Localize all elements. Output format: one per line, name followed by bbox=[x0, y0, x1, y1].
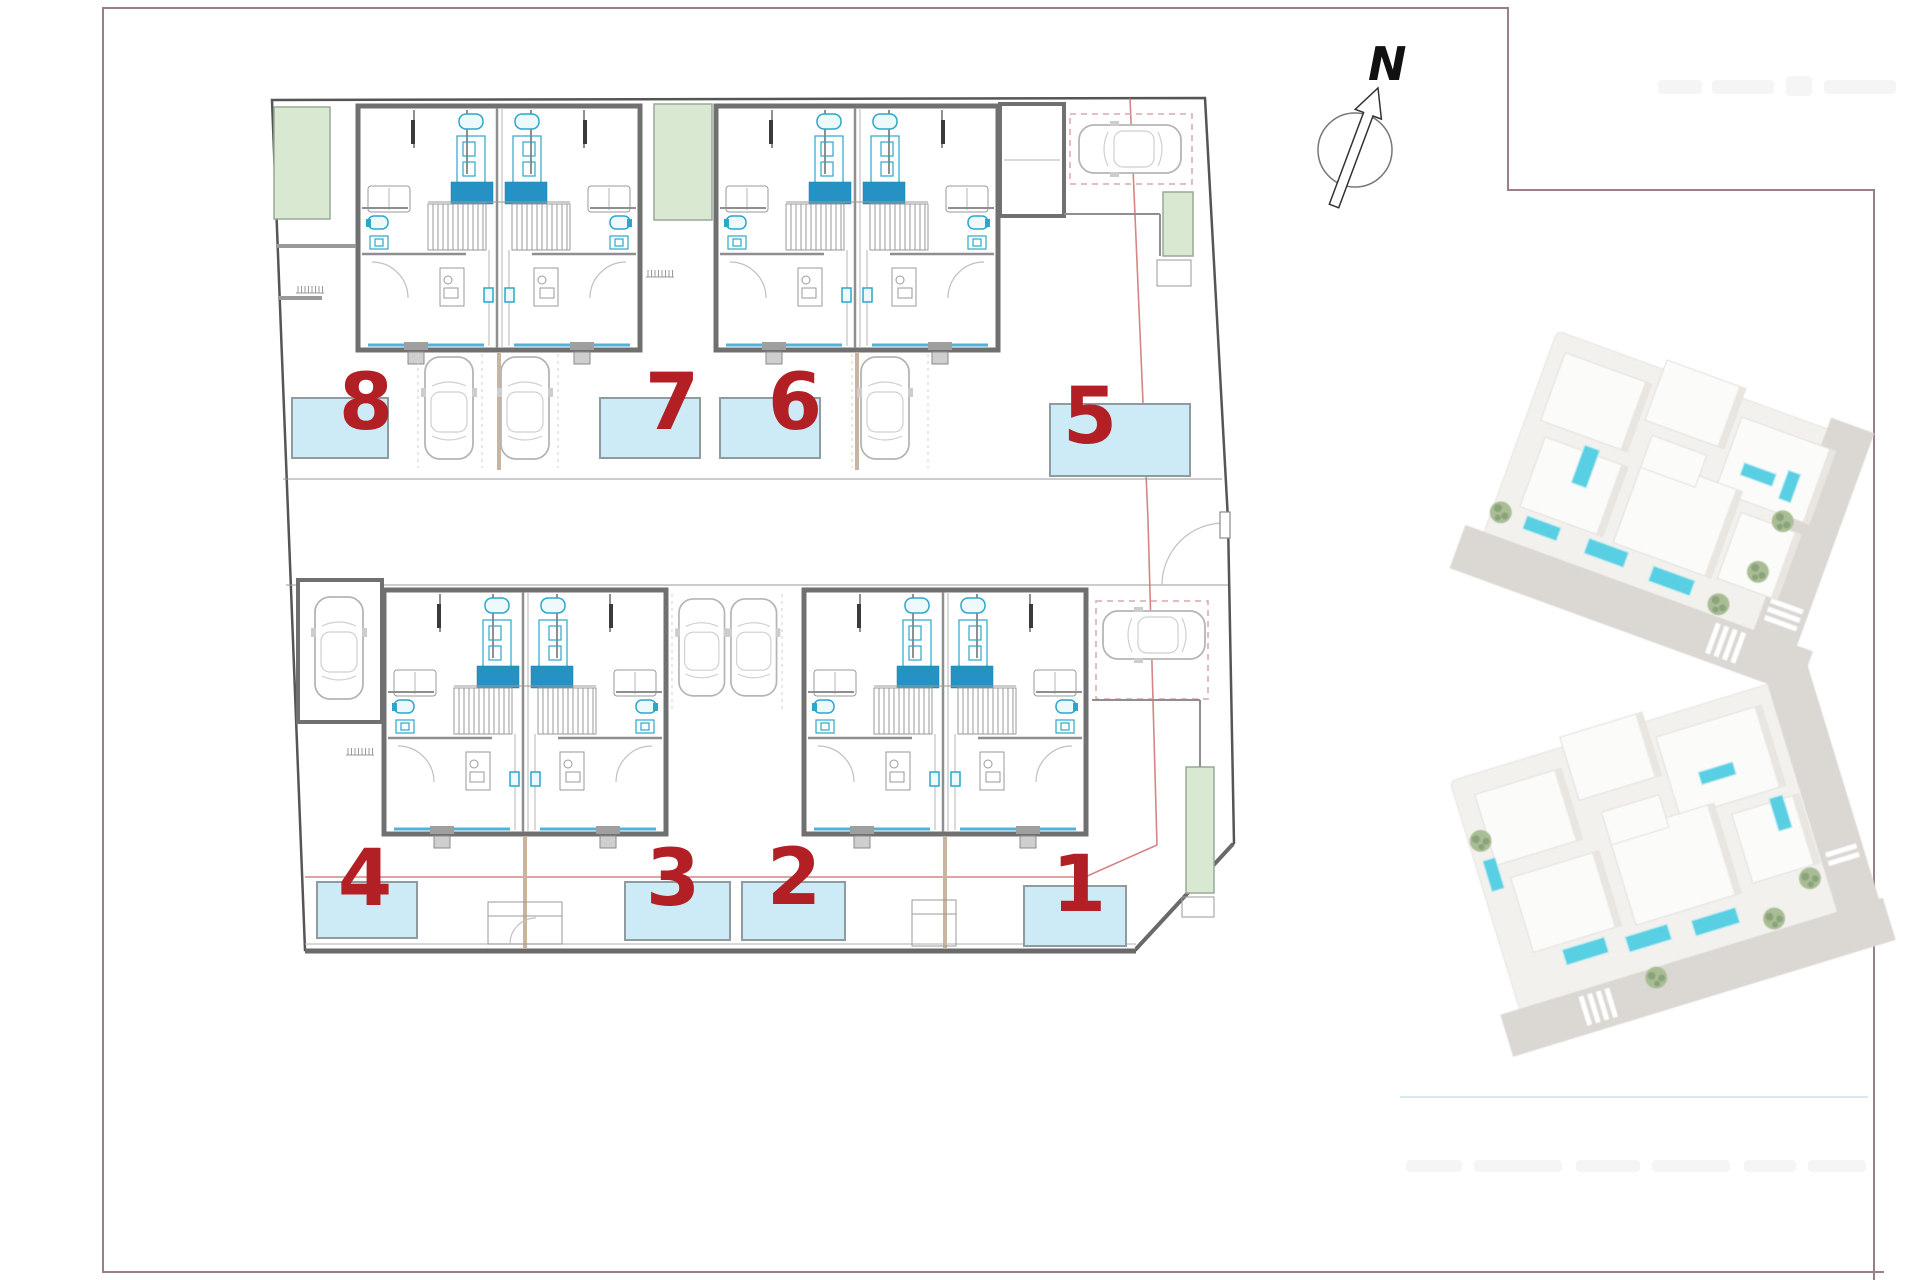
villa-number-3: 3 bbox=[646, 834, 700, 924]
car-icon bbox=[1103, 607, 1205, 663]
car-icon bbox=[421, 357, 477, 459]
building-duplex-4-3 bbox=[384, 590, 666, 848]
north-label: N bbox=[1368, 37, 1407, 91]
car-icon bbox=[1079, 121, 1181, 177]
villa-number-1: 1 bbox=[1052, 840, 1106, 930]
gate-post bbox=[1220, 512, 1230, 538]
car-icon bbox=[311, 597, 367, 699]
car-icon bbox=[727, 599, 780, 696]
car-icon bbox=[675, 599, 728, 696]
villa-number-8: 8 bbox=[339, 358, 393, 448]
green-patch-1 bbox=[274, 107, 330, 219]
car-icon bbox=[857, 357, 913, 459]
villa-number-6: 6 bbox=[768, 358, 822, 448]
green-patch-4 bbox=[1186, 767, 1214, 893]
green-patch-2 bbox=[654, 104, 712, 220]
watermark-top bbox=[1658, 76, 1896, 96]
watermark-bottom bbox=[1406, 1160, 1866, 1172]
building-duplex-8-7 bbox=[358, 106, 640, 364]
building-duplex-2-1 bbox=[804, 590, 1086, 848]
site-plan-page: 8 7 6 5 4 3 2 1 N bbox=[0, 0, 1920, 1280]
site-plan-drawing: 8 7 6 5 4 3 2 1 N bbox=[0, 0, 1920, 1280]
north-compass: N bbox=[1318, 37, 1407, 208]
villa-number-5: 5 bbox=[1063, 372, 1117, 462]
villa-number-2: 2 bbox=[767, 833, 821, 923]
green-patch-3 bbox=[1163, 192, 1193, 256]
villa-number-7: 7 bbox=[645, 358, 699, 448]
aerial-render-bottom bbox=[1428, 661, 1896, 1057]
villa-number-4: 4 bbox=[338, 834, 392, 924]
north-arrow-icon bbox=[1329, 88, 1381, 208]
aerial-render-top bbox=[1450, 313, 1891, 695]
building-duplex-6-5 bbox=[716, 106, 998, 364]
car-icon bbox=[497, 357, 553, 459]
entry-steps bbox=[1182, 897, 1214, 917]
